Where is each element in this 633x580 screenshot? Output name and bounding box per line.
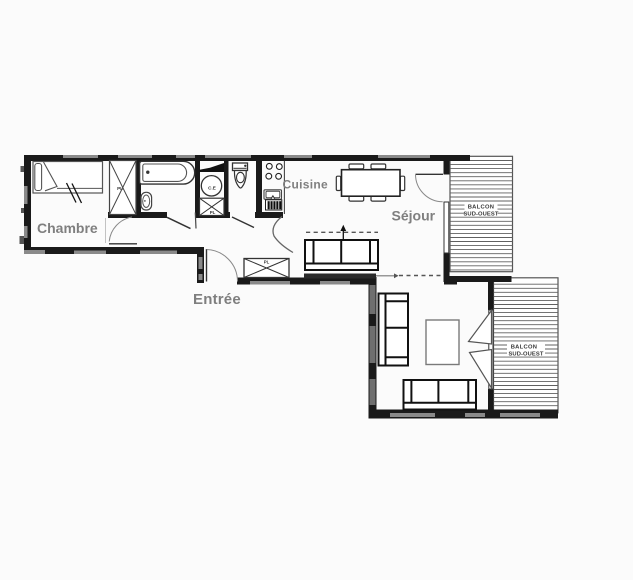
svg-text:BALCON: BALCON — [511, 344, 538, 350]
svg-text:Chambre: Chambre — [37, 220, 98, 236]
svg-text:BALCON: BALCON — [468, 205, 495, 211]
svg-text:PL: PL — [117, 186, 123, 191]
svg-text:Cuisine: Cuisine — [283, 178, 328, 192]
svg-text:SUD-OUEST: SUD-OUEST — [463, 211, 498, 217]
svg-text:SUD-OUEST: SUD-OUEST — [508, 351, 543, 357]
svg-text:Séjour: Séjour — [392, 208, 436, 224]
svg-text:Entrée: Entrée — [193, 291, 241, 308]
svg-text:C.E: C.E — [208, 185, 216, 190]
svg-text:PL: PL — [210, 210, 216, 215]
svg-text:PL: PL — [264, 260, 270, 265]
